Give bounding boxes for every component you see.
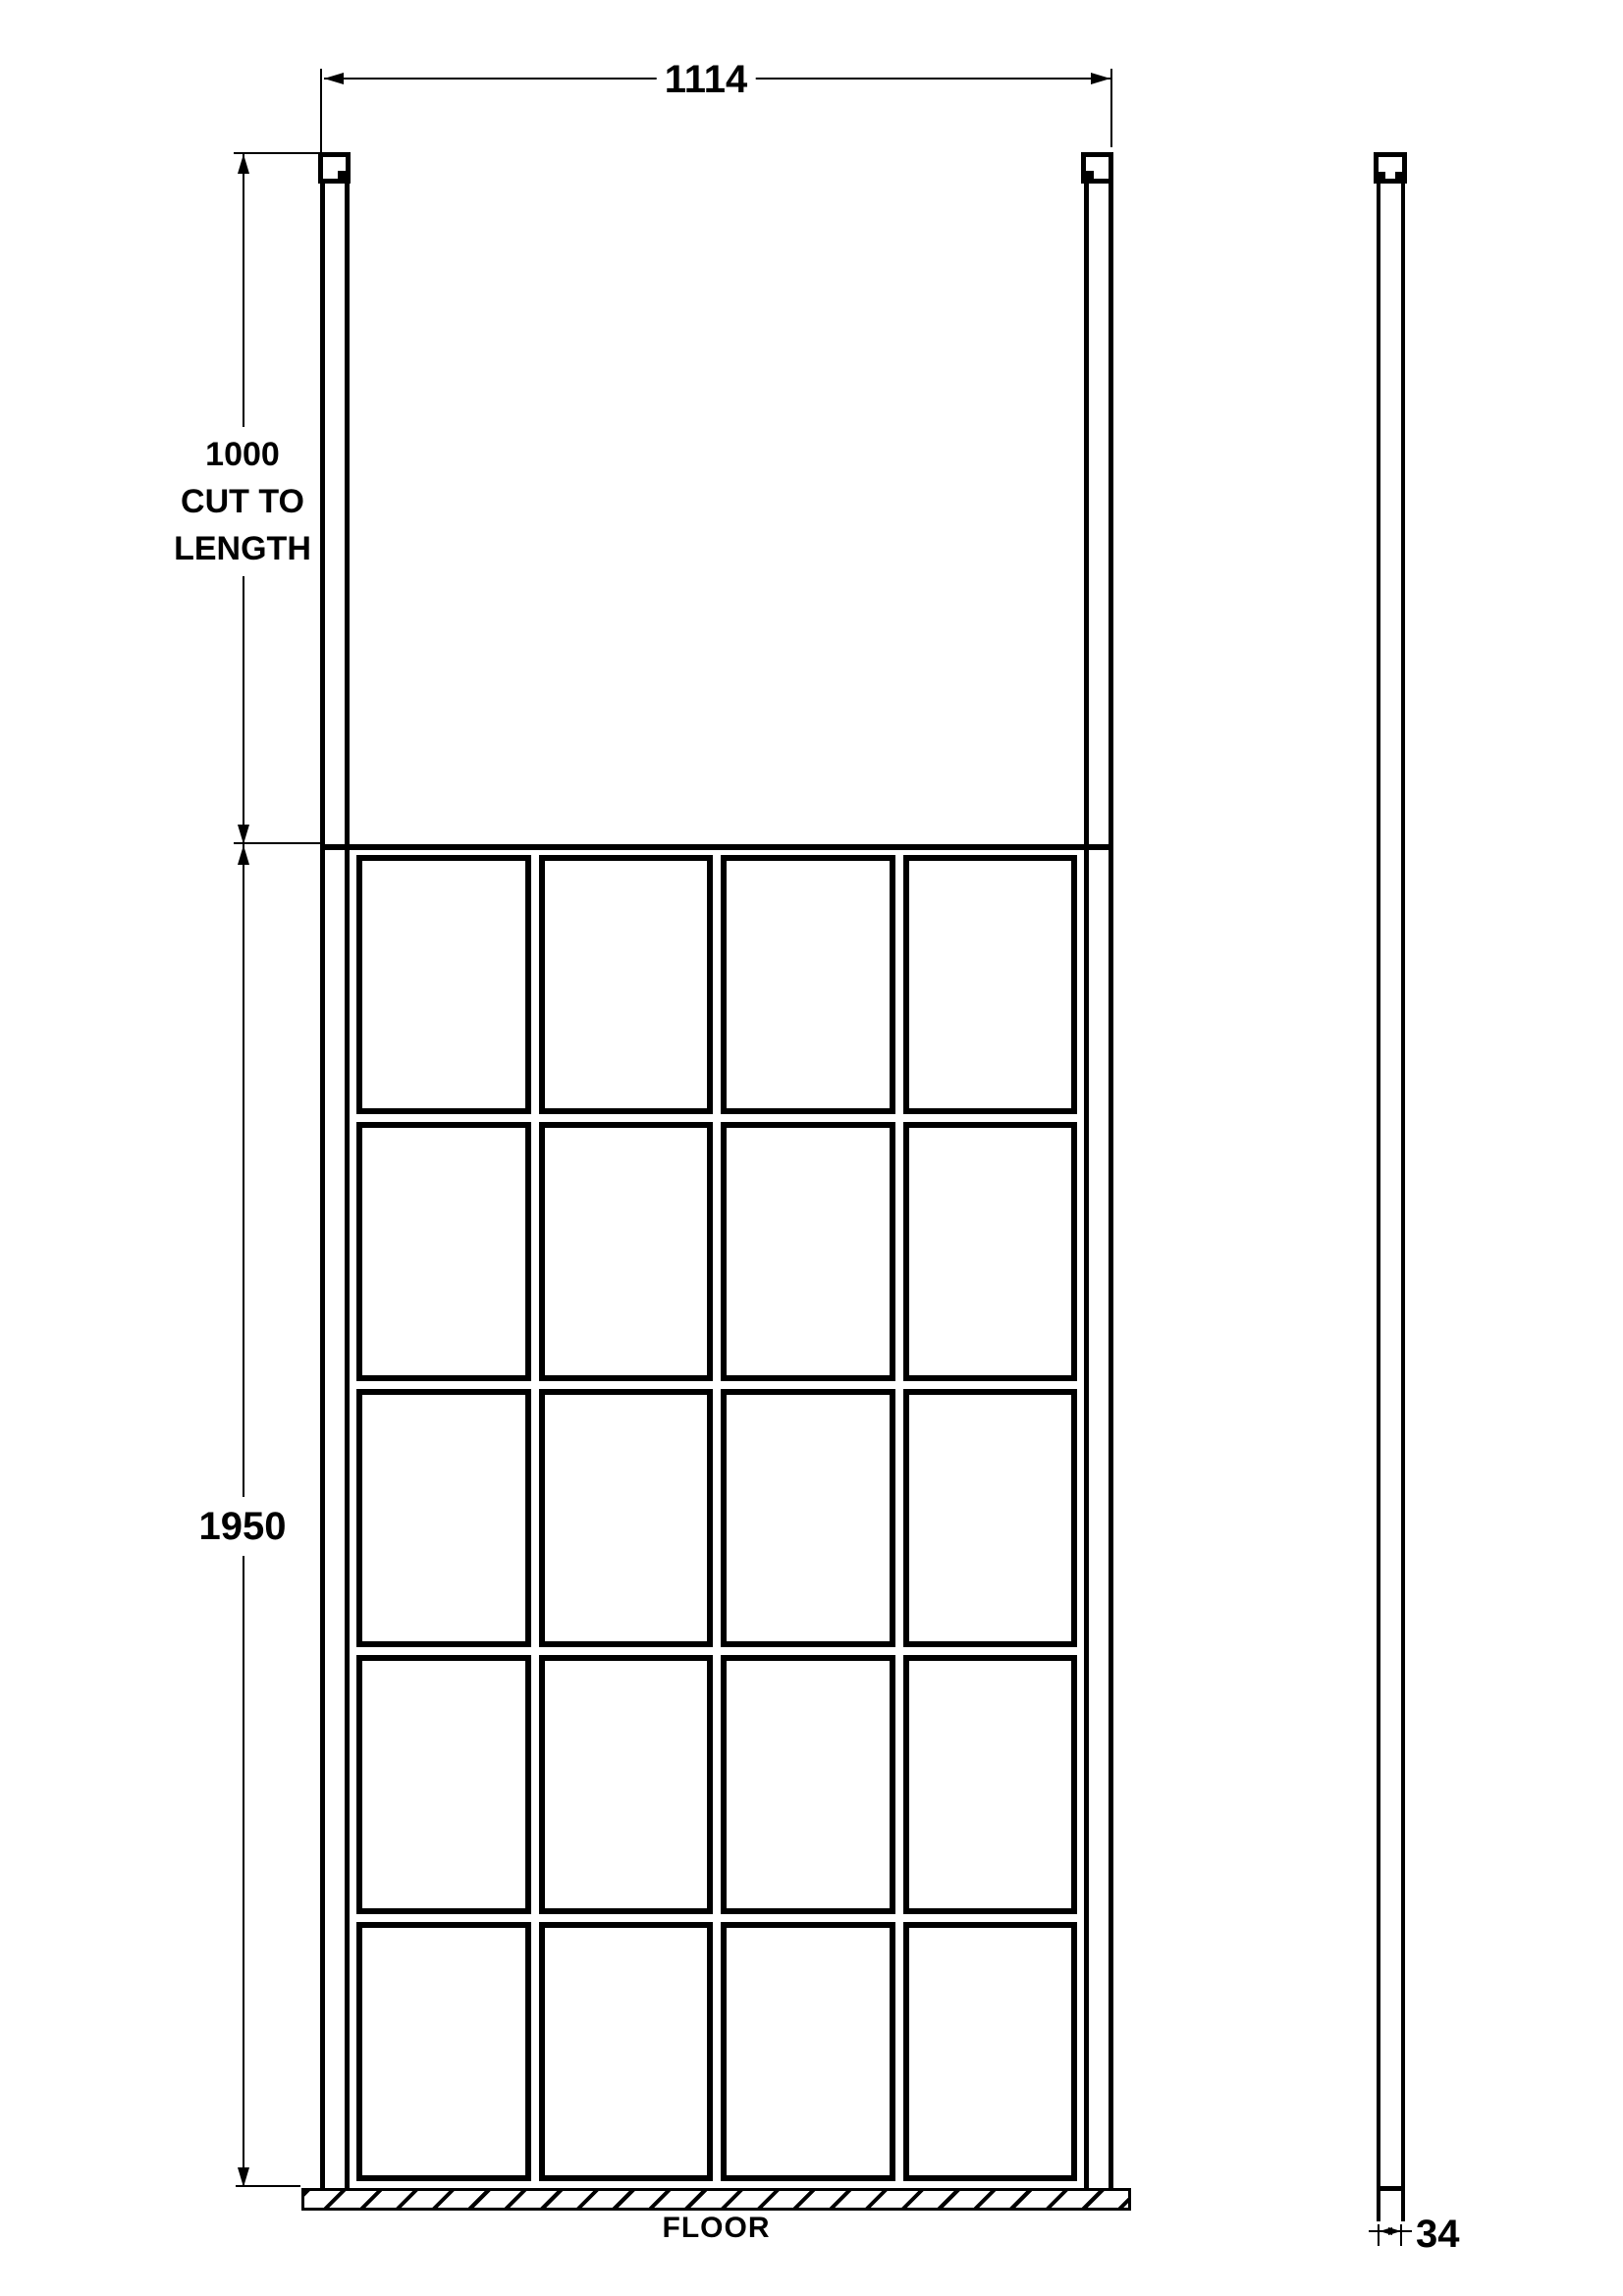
- screen-frame-inner-left: [345, 850, 350, 2188]
- glass-grid: [356, 855, 1077, 2181]
- dim-post-note-1: CUT TO: [174, 478, 311, 525]
- floor-label: FLOOR: [301, 2212, 1131, 2245]
- glass-pane: [903, 1389, 1078, 1648]
- left-ceiling-post: [320, 184, 350, 844]
- glass-pane: [903, 1922, 1078, 2181]
- glass-pane: [539, 1122, 714, 1381]
- screen-frame-inner-right: [1084, 850, 1089, 2188]
- dim-arrow-up: [238, 154, 249, 174]
- right-ceiling-post: [1084, 184, 1113, 844]
- dim-arrow-down: [238, 2167, 249, 2187]
- glass-pane: [721, 855, 895, 1114]
- dim-arrow-right: [1388, 2227, 1401, 2235]
- height-tick-mid: [234, 842, 324, 844]
- cap-notch: [338, 171, 346, 179]
- dim-width-label: 1114: [657, 58, 756, 101]
- dim-arrow-up: [238, 845, 249, 865]
- cap-notch: [1086, 171, 1094, 179]
- glass-pane: [903, 1122, 1078, 1381]
- glass-pane: [356, 1389, 531, 1648]
- glass-pane: [356, 855, 531, 1114]
- side-profile-body: [1377, 184, 1405, 2221]
- width-ext-left: [320, 69, 322, 152]
- side-floor-line: [1377, 2186, 1405, 2191]
- dim-post-value: 1000: [174, 431, 311, 478]
- glass-pane: [721, 1655, 895, 1914]
- glass-pane: [539, 1389, 714, 1648]
- dim-arrow-right: [1091, 73, 1110, 84]
- dim-height-label: 1950: [195, 1497, 291, 1556]
- side-post-cap: [1374, 152, 1407, 184]
- drawing-canvas: FLOOR 1114 1000 CUT TO LENGTH 1950: [0, 0, 1623, 2296]
- glass-pane: [539, 855, 714, 1114]
- cap-notch: [1395, 172, 1402, 179]
- glass-pane: [903, 1655, 1078, 1914]
- glass-pane: [721, 1922, 895, 2181]
- glass-pane: [356, 1122, 531, 1381]
- glass-pane: [903, 855, 1078, 1114]
- dim-arrow-left: [324, 73, 344, 84]
- glass-pane: [539, 1922, 714, 2181]
- glass-pane: [356, 1655, 531, 1914]
- width-ext-right: [1110, 69, 1112, 147]
- height-tick-bottom: [236, 2185, 300, 2187]
- floor-strip: [301, 2188, 1131, 2211]
- glass-pane: [721, 1122, 895, 1381]
- dim-post-label: 1000 CUT TO LENGTH: [168, 427, 317, 576]
- dim-thickness-label: 34: [1412, 2213, 1464, 2256]
- glass-pane: [356, 1922, 531, 2181]
- left-post-cap: [318, 152, 351, 184]
- glass-pane: [539, 1655, 714, 1914]
- dim-arrow-down: [238, 825, 249, 844]
- right-post-cap: [1081, 152, 1113, 184]
- cap-notch: [1379, 172, 1385, 179]
- dim-post-note-2: LENGTH: [174, 525, 311, 572]
- glass-pane: [721, 1389, 895, 1648]
